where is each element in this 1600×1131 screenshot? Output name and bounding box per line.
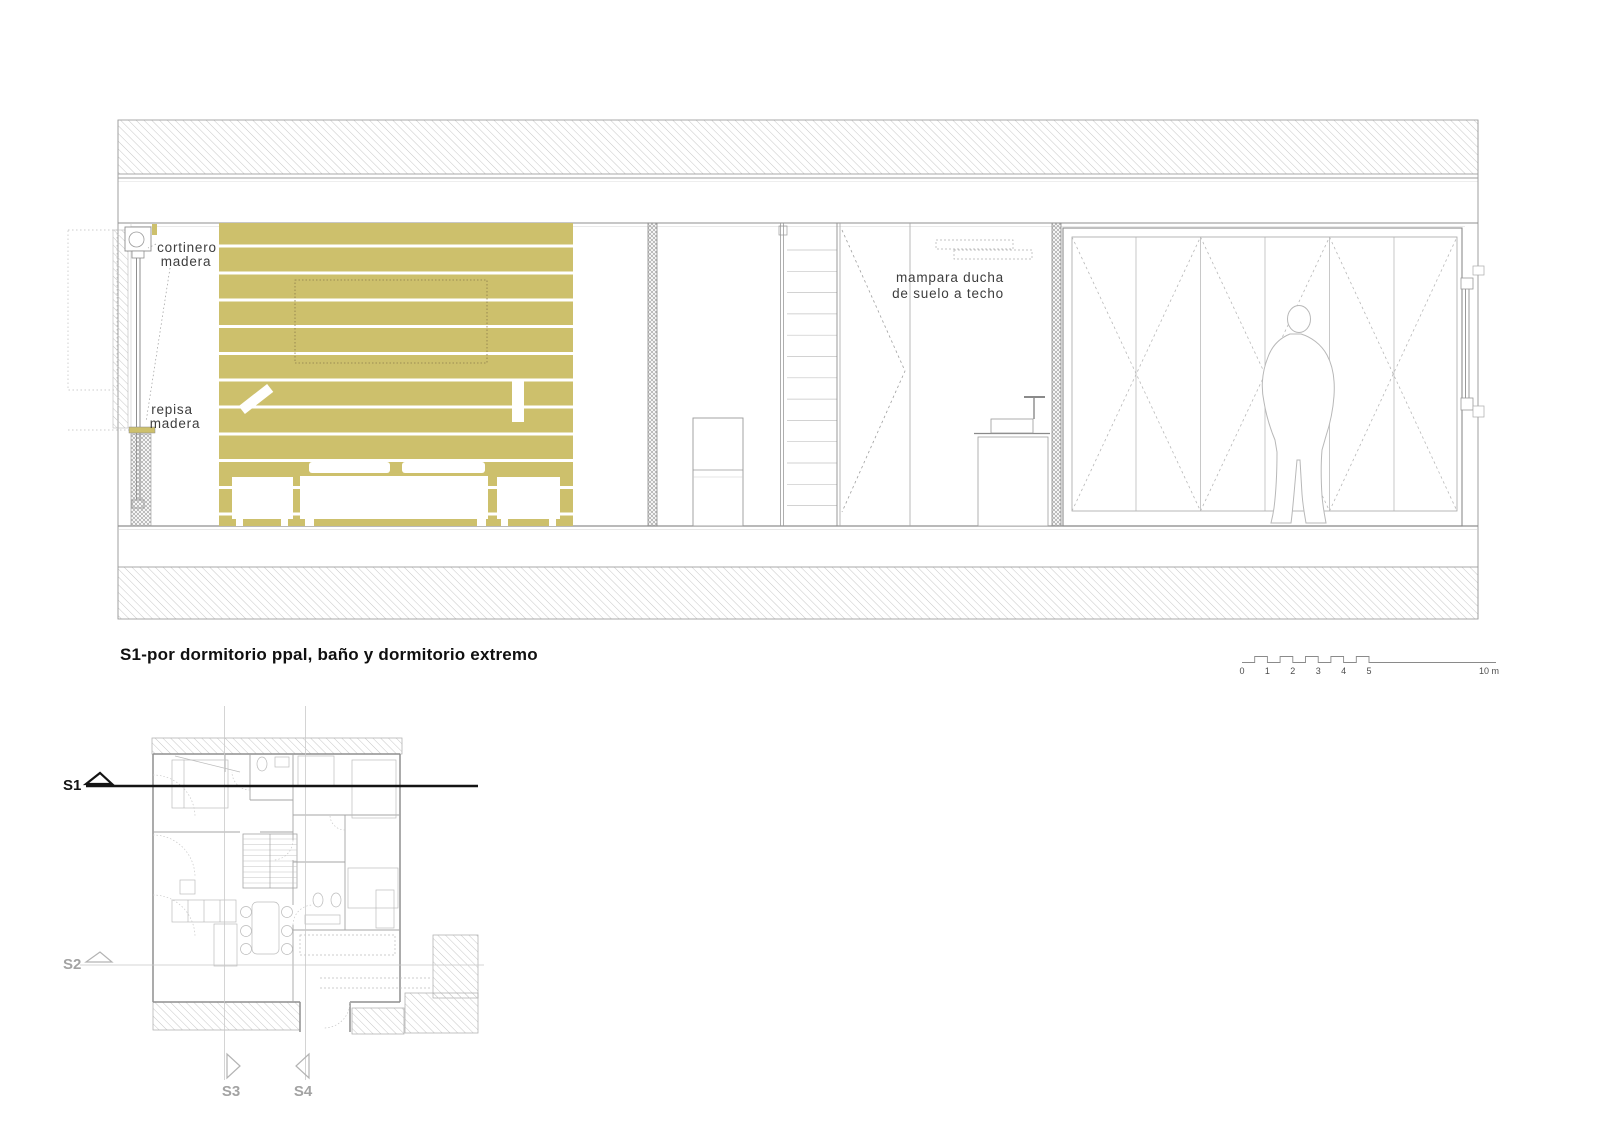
plan-bathtub xyxy=(376,890,394,928)
plan-sofa-chaise xyxy=(214,924,237,966)
annotation-mampara-line1: mampara ducha xyxy=(896,270,1004,285)
plan-toilet-1 xyxy=(257,757,267,771)
vanity-cabinet xyxy=(978,437,1048,526)
top-slab-hatch xyxy=(118,120,1478,174)
scale-label-1: 1 xyxy=(1265,666,1270,676)
plan-bed-second xyxy=(352,760,396,818)
right-window-sill xyxy=(1461,398,1473,410)
human-silhouette xyxy=(1262,306,1334,524)
plan-bed-third xyxy=(348,868,398,908)
right-window xyxy=(1461,266,1484,417)
dashed-shelf-1 xyxy=(936,240,1013,249)
washbasin xyxy=(974,397,1050,526)
section-drawing: cortinero madera repisa madera mampara d… xyxy=(68,120,1484,664)
silhouette-head xyxy=(1288,306,1311,333)
wood-slat-wall xyxy=(219,223,573,526)
partition-wall-1 xyxy=(648,223,657,526)
context-dotted-outline xyxy=(68,230,117,390)
plan-sink-1 xyxy=(275,757,289,767)
bed-platform xyxy=(300,476,488,519)
nightstand-left xyxy=(232,477,293,519)
plan-hatch-bottom-left xyxy=(153,1002,300,1030)
headboard-cushion-left xyxy=(309,462,390,473)
scale-label-3: 3 xyxy=(1316,666,1321,676)
plan-hatch-top xyxy=(152,738,402,754)
curtain-roll-icon xyxy=(129,232,144,247)
s2-marker-icon xyxy=(86,952,112,962)
s1-marker-icon xyxy=(86,773,112,784)
scale-label-0: 0 xyxy=(1239,666,1244,676)
right-window-head xyxy=(1461,278,1473,289)
plan-toilet-2 xyxy=(313,893,323,907)
partition-wall-2 xyxy=(1052,223,1061,526)
plan-bidet xyxy=(331,893,341,907)
annotation-cortinero-line1: cortinero xyxy=(157,240,217,255)
s3-marker-label: S3 xyxy=(222,1083,240,1100)
plan-vanity xyxy=(305,915,340,924)
s3-marker-icon xyxy=(227,1054,240,1078)
plan-exterior-walls xyxy=(153,754,400,1032)
scale-bar-profile xyxy=(1242,657,1496,663)
window-assembly xyxy=(113,224,157,526)
plan-closet-shelves xyxy=(300,935,395,955)
wall-hatch-strip xyxy=(113,230,128,428)
drawing-canvas: cortinero madera repisa madera mampara d… xyxy=(0,0,1600,1131)
right-jamb-bottom xyxy=(1473,406,1484,417)
plan-stairs xyxy=(243,834,297,888)
plan-hatch-east-2 xyxy=(405,993,478,1033)
floor-plan: S1 S2 S3 S4 xyxy=(63,706,484,1100)
annotation-repisa-line1: repisa xyxy=(151,402,193,417)
curtain-pocket xyxy=(152,224,157,235)
plan-side-table xyxy=(180,880,195,894)
scale-bar: 0 1 2 3 4 5 10 m xyxy=(1239,657,1499,677)
right-jamb-top xyxy=(1473,266,1484,275)
architectural-sheet: cortinero madera repisa madera mampara d… xyxy=(0,0,1600,1131)
under-shelf-cabinet xyxy=(131,434,151,526)
annotation-mampara-line2: de suelo a techo xyxy=(892,286,1004,301)
s1-marker-label: S1 xyxy=(63,777,81,794)
plan-hatch-east-1 xyxy=(433,935,478,998)
shower-enclosure xyxy=(840,223,910,526)
s4-marker-icon xyxy=(296,1054,309,1078)
scale-label-4: 4 xyxy=(1341,666,1346,676)
scale-label-5: 5 xyxy=(1366,666,1371,676)
scale-label-2: 2 xyxy=(1290,666,1295,676)
plan-hatch-entry xyxy=(352,1008,404,1034)
annotation-cortinero-line2: madera xyxy=(161,254,212,269)
annotation-repisa-line2: madera xyxy=(150,416,201,431)
bottom-slab-hatch xyxy=(118,567,1478,619)
plan-shower-tray xyxy=(298,756,334,786)
plan-furniture xyxy=(172,756,430,988)
nightstand-right xyxy=(497,477,560,519)
plan-dining-table xyxy=(252,902,279,954)
headboard-cushion-right xyxy=(402,462,485,473)
stairs xyxy=(779,223,837,526)
stair-treads xyxy=(787,250,837,506)
basin xyxy=(991,419,1033,433)
scale-label-10m: 10 m xyxy=(1479,666,1499,676)
leader-line-long xyxy=(146,268,170,422)
s4-marker-label: S4 xyxy=(294,1083,313,1100)
dashed-shelf-2 xyxy=(954,250,1032,259)
s2-marker-label: S2 xyxy=(63,956,81,973)
section-title: S1-por dormitorio ppal, baño y dormitori… xyxy=(120,645,538,664)
wall-light-right xyxy=(512,381,524,422)
window-head-block xyxy=(132,251,144,258)
tall-cabinet xyxy=(693,418,743,526)
